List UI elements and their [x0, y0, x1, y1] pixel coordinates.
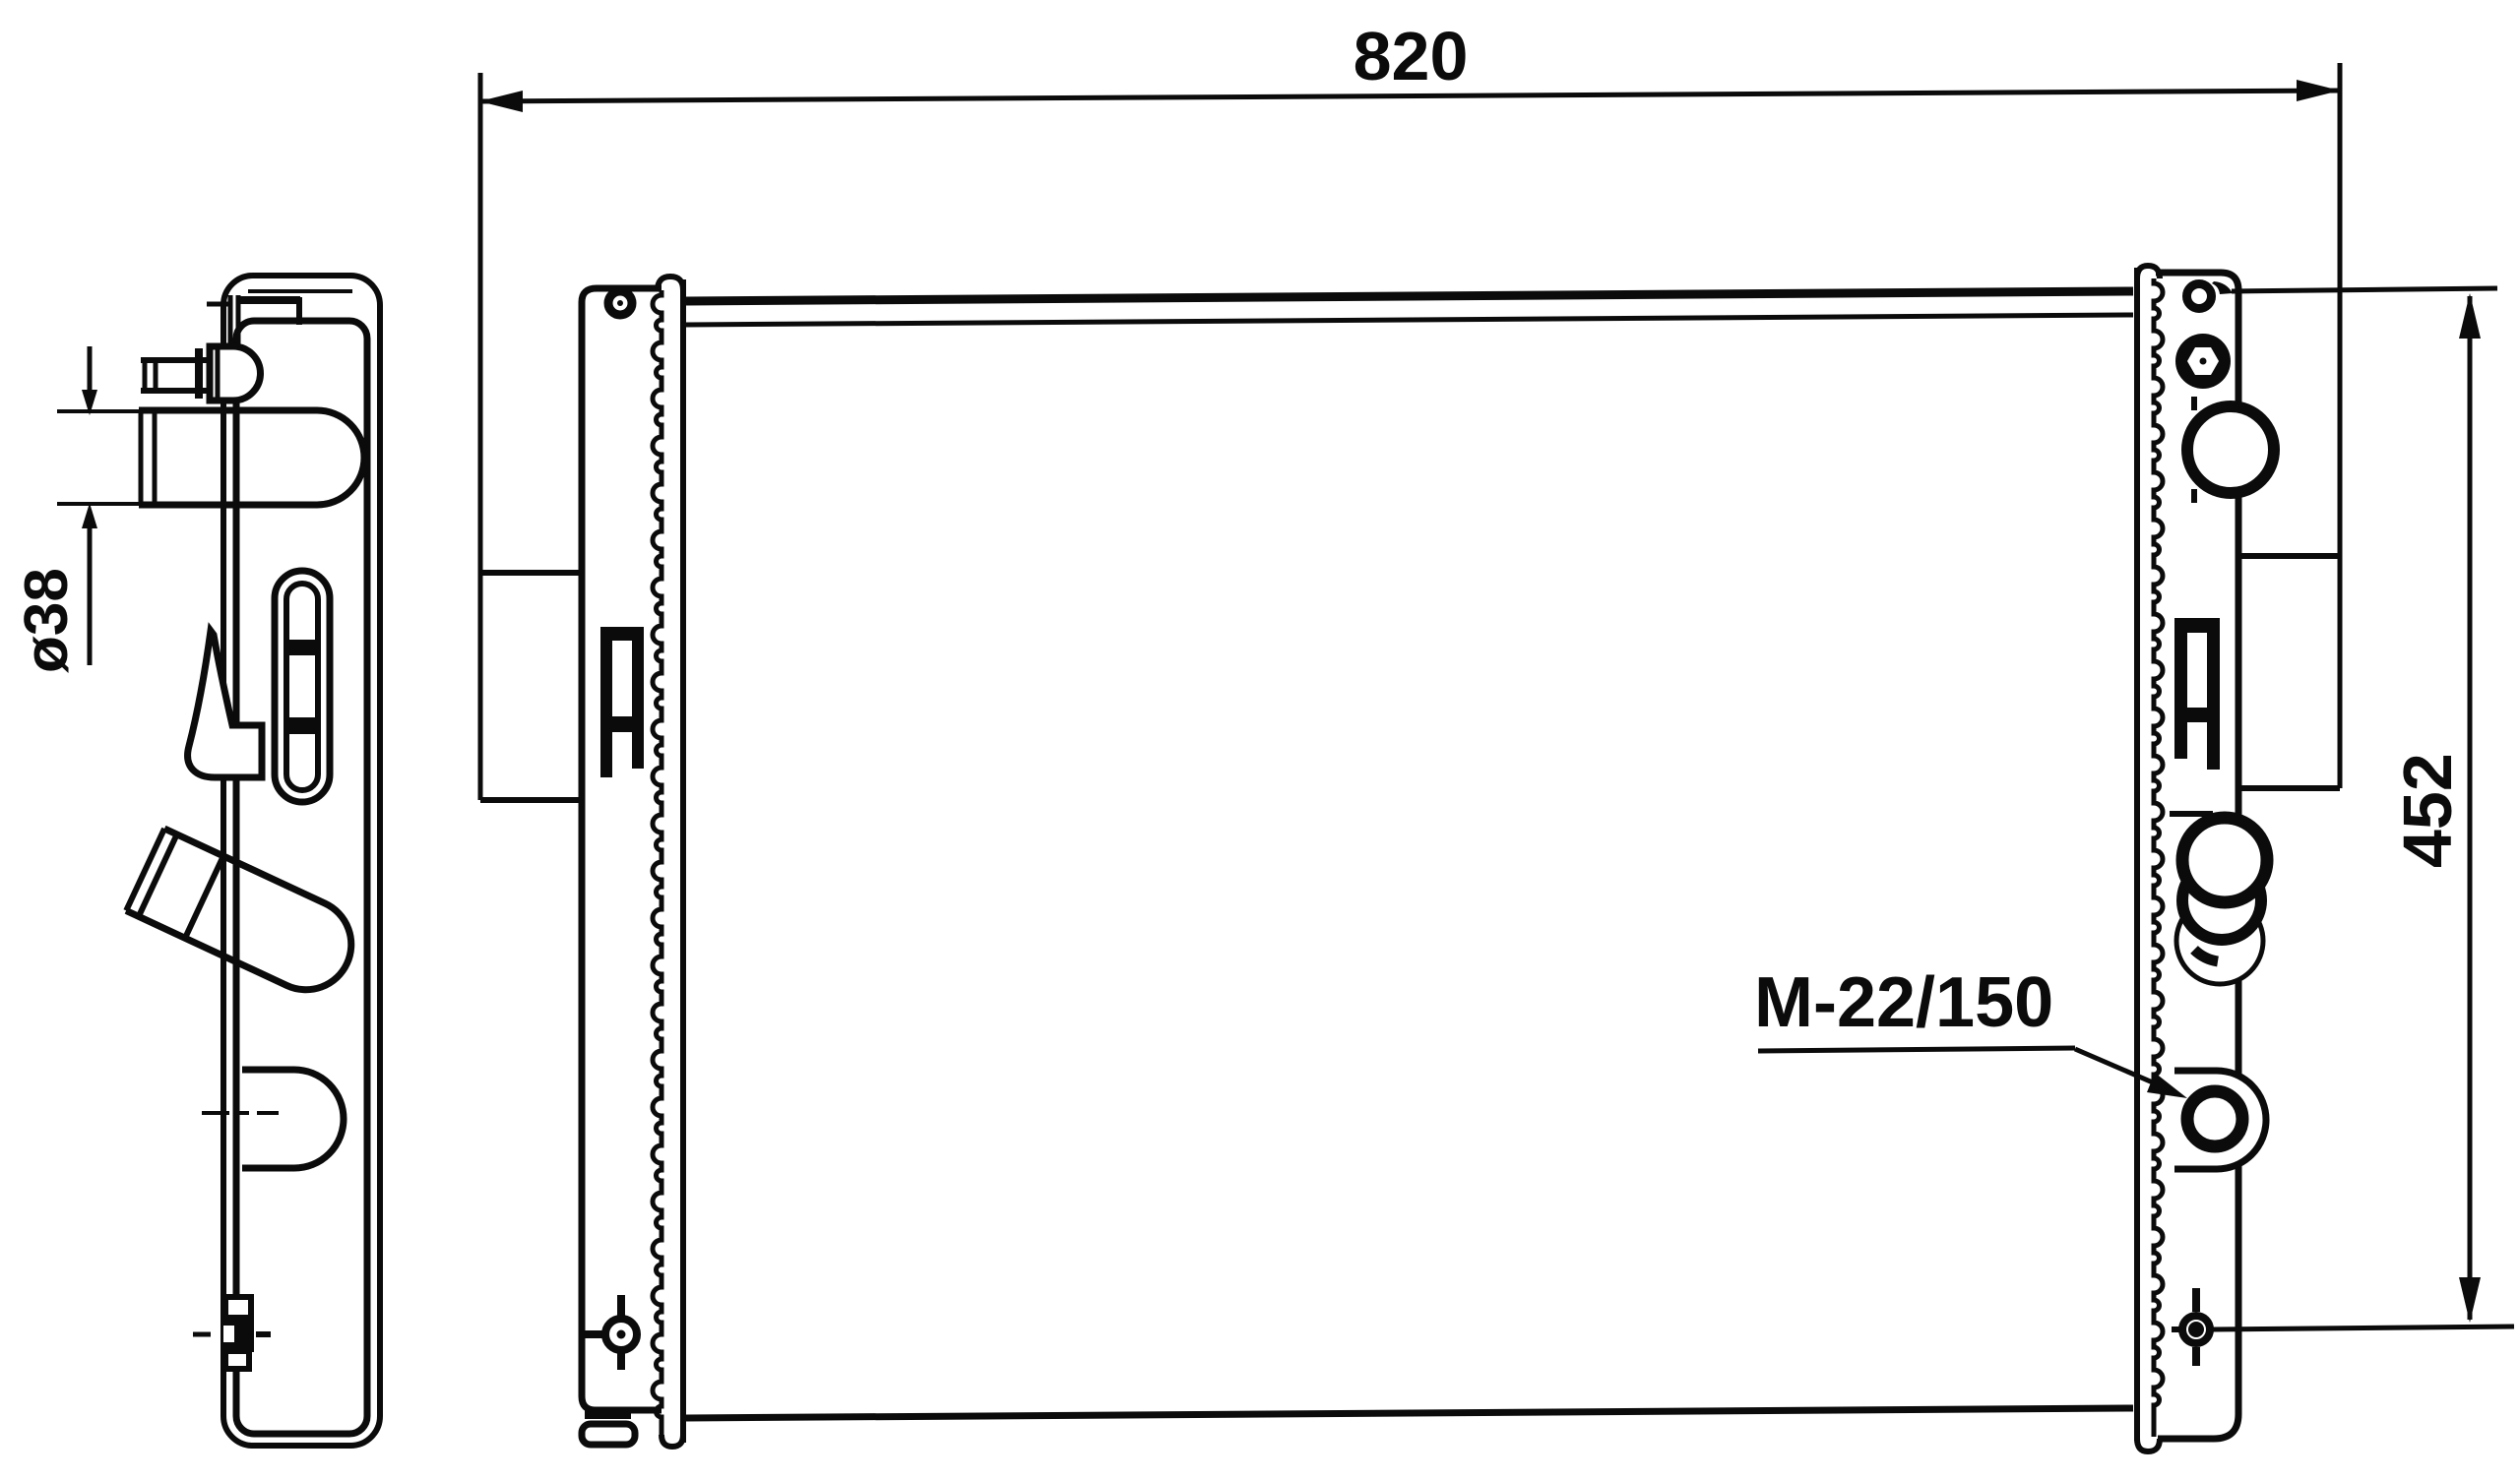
svg-text:ø38: ø38: [13, 568, 81, 673]
svg-text:820: 820: [1354, 18, 1469, 94]
svg-text:M-22/150: M-22/150: [1754, 963, 2053, 1042]
svg-text:452: 452: [2389, 753, 2466, 868]
